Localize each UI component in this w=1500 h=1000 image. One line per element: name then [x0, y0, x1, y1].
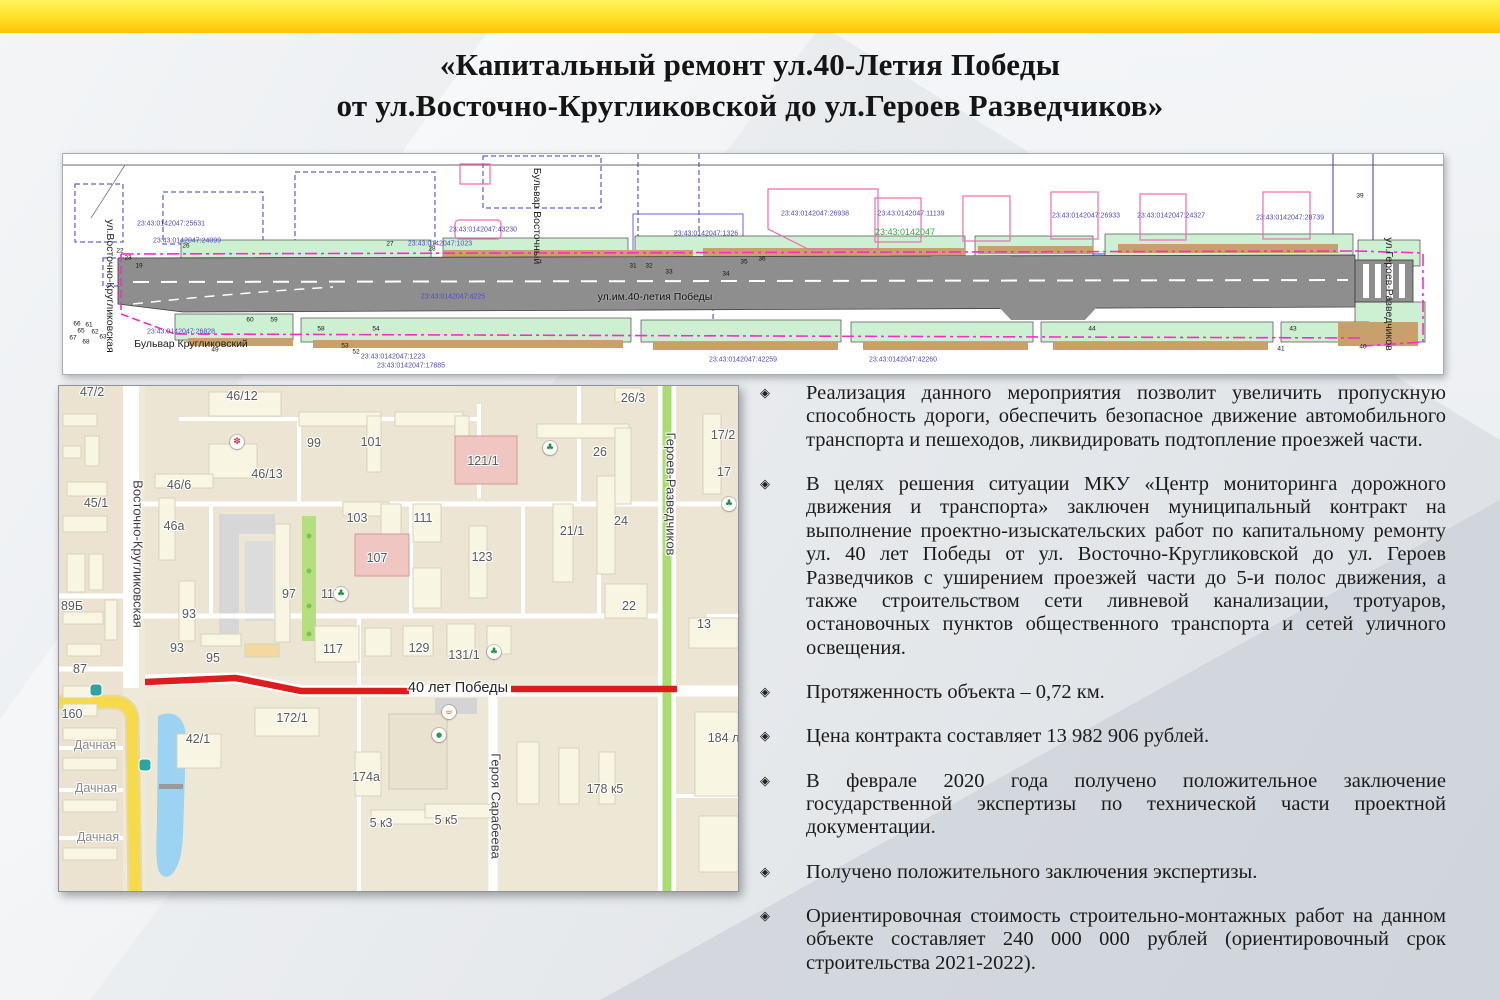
- map-building-label: 111: [413, 511, 432, 525]
- bullet-text: Цена контракта составляет 13 982 906 руб…: [806, 725, 1446, 748]
- blueprint-cadastral-label: 23:43:0142047:42259: [709, 357, 777, 364]
- blueprint-point-marker: 28: [428, 246, 435, 253]
- eco-icon: ♣: [722, 497, 736, 511]
- map-building-label: 117: [323, 642, 343, 656]
- map-building-label: 46/6: [167, 478, 191, 492]
- map-street-vostochno-kruglikovskaya: Восточно-Кругликовская: [131, 480, 146, 628]
- map-building-label: 89Б: [61, 599, 83, 613]
- blueprint-cadastral-label: 23:43:0142047:42260: [869, 357, 937, 364]
- title-line-1: «Капитальный ремонт ул.40-Летия Победы: [440, 47, 1060, 82]
- map-building-label: 5 к5: [435, 813, 458, 827]
- map-street-40-let-pobedy: 40 лет Победы: [408, 680, 508, 696]
- bullet-marker-icon: ◈: [760, 727, 782, 748]
- blueprint-point-marker: 59: [270, 317, 277, 324]
- map-building-label: 121/1: [467, 454, 498, 468]
- blueprint-point-marker: 35: [740, 259, 747, 266]
- bullet-item: ◈Цена контракта составляет 13 982 906 ру…: [760, 725, 1446, 748]
- blueprint-point-marker: 49: [211, 347, 218, 354]
- bullet-list: ◈Реализация данного мероприятия позволит…: [760, 382, 1446, 996]
- map-building-label: 26/3: [621, 391, 645, 405]
- bullet-text: Получено положительного заключения экспе…: [806, 861, 1446, 884]
- blueprint-cadastral-label: 23:43:0142047:1223: [361, 354, 425, 361]
- blueprint-cadastral-label: 23:43:0142047:4225: [421, 294, 485, 301]
- blueprint-point-marker: 41: [1277, 346, 1284, 353]
- blueprint-point-marker: 44: [1088, 326, 1095, 333]
- blueprint-point-marker: 60: [246, 317, 253, 324]
- blueprint-cadastral-label: 23:43:0142047:24099: [153, 238, 221, 245]
- blueprint-point-marker: 58: [317, 326, 324, 333]
- blueprint-street-bulvar-kruglikovsky: Бульвар Кругликовский: [134, 338, 248, 350]
- blueprint-cadastral-label: 23:43:0142047:1023: [408, 241, 472, 248]
- eco-icon: ♣: [334, 587, 348, 601]
- blueprint-point-marker: 31: [629, 263, 636, 270]
- blueprint-cadastral-label: 23:43:0142047:25631: [137, 221, 205, 228]
- map-street-dachnaya: Дачная: [74, 738, 116, 752]
- blueprint-point-marker: 22: [116, 248, 123, 255]
- map-building-label: 95: [206, 651, 220, 665]
- blueprint-point-marker: 63: [99, 334, 106, 341]
- bullet-item: ◈В феврале 2020 года получено положитель…: [760, 770, 1446, 840]
- blueprint-label-layer: ул.Восточно-КругликовскаяБульвар Круглик…: [63, 154, 1443, 374]
- map-building-label: 129: [409, 641, 430, 655]
- blueprint-point-marker: 65: [77, 328, 84, 335]
- blueprint-point-marker: 36: [758, 256, 765, 263]
- blueprint-point-marker: 26: [182, 243, 189, 250]
- cafe-icon: ☕: [442, 705, 456, 719]
- top-accent-bar: [0, 0, 1500, 33]
- bullet-text: В целях решения ситуации МКУ «Центр мони…: [806, 473, 1446, 660]
- map-building-label: 160: [62, 707, 83, 721]
- map-building-label: 17/2: [711, 428, 735, 442]
- blueprint-cadastral-label: 23:43:0142047:24327: [1137, 213, 1205, 220]
- blueprint-point-marker: 32: [645, 263, 652, 270]
- map-building-label: 24: [614, 514, 628, 528]
- blueprint-cadastral-label: 23:43:0142047:43230: [449, 227, 517, 234]
- blueprint-point-marker: 54: [372, 326, 379, 333]
- map-building-label: 172/1: [276, 711, 307, 725]
- map-building-label: 99: [307, 436, 321, 450]
- map-building-label: 46а: [164, 519, 185, 533]
- blueprint-cadastral-label: 23:43:0142047:26933: [1052, 213, 1120, 220]
- map-building-label: 5 к3: [370, 816, 393, 830]
- map-building-label: 42/1: [186, 732, 210, 746]
- map-building-label: 131/1: [448, 648, 479, 662]
- eco-icon: ♣: [543, 441, 557, 455]
- map-building-label: 45/1: [84, 496, 108, 510]
- blueprint-cadastral-label: 23:43:0142047: [875, 227, 935, 237]
- eco-icon: ♣: [487, 645, 501, 659]
- blueprint-panel: ул.Восточно-КругликовскаяБульвар Круглик…: [62, 153, 1444, 375]
- bullet-item: ◈В целях решения ситуации МКУ «Центр мон…: [760, 473, 1446, 660]
- bullet-item: ◈Ориентировочная стоимость строительно-м…: [760, 905, 1446, 975]
- map-street-dachnaya: Дачная: [75, 781, 117, 795]
- map-street-dachnaya: Дачная: [77, 830, 119, 844]
- blueprint-point-marker: 23: [124, 255, 131, 262]
- bullet-marker-icon: ◈: [760, 683, 782, 704]
- map-building-label: 97: [282, 587, 296, 601]
- blueprint-cadastral-label: 23:43:0142047:1326: [674, 231, 738, 238]
- bullet-text: В феврале 2020 года получено положительн…: [806, 770, 1446, 840]
- bullet-marker-icon: ◈: [760, 475, 782, 660]
- bullet-text: Протяженность объекта – 0,72 км.: [806, 681, 1446, 704]
- bullet-item: ◈Реализация данного мероприятия позволит…: [760, 382, 1446, 452]
- city-map-panel: 47/246/129910146/1346/645/146а1031071111…: [58, 385, 739, 892]
- blueprint-street-vostochno-kruglikovskaya: ул.Восточно-Кругликовская: [104, 219, 116, 352]
- blueprint-street-bulvar-vostochny: Бульвар Восточный: [531, 168, 543, 264]
- map-label-layer: 47/246/129910146/1346/645/146а1031071111…: [59, 386, 738, 891]
- blueprint-cadastral-label: 23:43:0142047:28739: [1256, 215, 1324, 222]
- map-building-label: 26: [593, 445, 607, 459]
- map-building-label: 123: [472, 550, 493, 564]
- bullet-marker-icon: ◈: [760, 863, 782, 884]
- blueprint-point-marker: 53: [341, 343, 348, 350]
- blueprint-point-marker: 67: [69, 335, 76, 342]
- bullet-marker-icon: ◈: [760, 384, 782, 452]
- blueprint-point-marker: 66: [73, 321, 80, 328]
- blueprint-point-marker: 33: [665, 269, 672, 276]
- map-building-label: 13: [697, 617, 711, 631]
- slide: { "title": { "line1": "«Капитальный ремо…: [0, 0, 1500, 1000]
- slide-title: «Капитальный ремонт ул.40-Летия Победыот…: [40, 44, 1460, 126]
- blueprint-point-marker: 19: [135, 263, 142, 270]
- map-building-label: 93: [182, 607, 196, 621]
- map-building-label: 21/1: [560, 524, 584, 538]
- blueprint-point-marker: 27: [386, 241, 393, 248]
- blueprint-street-geroev-razvedchikov: ул.Героев-Разведчиков: [1383, 237, 1395, 350]
- blueprint-cadastral-label: 23:43:0142047:26938: [781, 211, 849, 218]
- map-building-label: 17: [717, 465, 731, 479]
- map-building-label: 101: [361, 435, 382, 449]
- blueprint-point-marker: 68: [82, 339, 89, 346]
- map-building-label: 87: [73, 662, 87, 676]
- blueprint-point-marker: 61: [85, 322, 92, 329]
- blueprint-point-marker: 34: [722, 271, 729, 278]
- map-building-label: 115: [321, 587, 341, 601]
- map-building-label: 178 к5: [587, 782, 624, 796]
- bullet-text: Реализация данного мероприятия позволит …: [806, 382, 1446, 452]
- bus-stop-icon: [140, 760, 151, 771]
- landmark-flower-icon: ✽: [230, 435, 244, 449]
- bus-stop-icon: [91, 685, 102, 696]
- title-line-2: от ул.Восточно-Кругликовской до ул.Герое…: [337, 88, 1164, 123]
- bullet-marker-icon: ◈: [760, 772, 782, 840]
- map-building-label: 174а: [352, 770, 380, 784]
- bullet-item: ◈Получено положительного заключения эксп…: [760, 861, 1446, 884]
- shop-cart-icon: ●: [432, 728, 446, 742]
- blueprint-cadastral-label: 23:43:0142047:11139: [877, 211, 944, 218]
- map-building-label: 107: [367, 551, 388, 565]
- blueprint-point-marker: 43: [1289, 326, 1296, 333]
- map-building-label: 103: [347, 511, 368, 525]
- blueprint-point-marker: 40: [1359, 344, 1366, 351]
- map-building-label: 46/12: [226, 389, 257, 403]
- bullet-marker-icon: ◈: [760, 907, 782, 975]
- map-building-label: 93: [170, 641, 184, 655]
- map-street-geroya-sarabeeva: Героя Сарабеева: [489, 753, 504, 859]
- map-building-label: 47/2: [80, 385, 104, 399]
- blueprint-point-marker: 39: [1356, 193, 1363, 200]
- blueprint-cadastral-label: 23:43:0142047:26828: [147, 329, 215, 336]
- blueprint-point-marker: 62: [91, 329, 98, 336]
- map-building-label: 46/13: [251, 467, 282, 481]
- blueprint-cadastral-label: 23:43:0142047:17885: [377, 363, 445, 370]
- blueprint-point-marker: 52: [352, 349, 359, 356]
- map-building-label: 22: [622, 599, 636, 613]
- bullet-item: ◈Протяженность объекта – 0,72 км.: [760, 681, 1446, 704]
- map-street-geroev-razvedchikov: Героев-Разведчиков: [664, 433, 679, 556]
- blueprint-street-40-letiya-pobedy: ул.им.40-летия Победы: [598, 291, 713, 303]
- bullet-text: Ориентировочная стоимость строительно-мо…: [806, 905, 1446, 975]
- map-building-label: 184 ли: [708, 731, 739, 745]
